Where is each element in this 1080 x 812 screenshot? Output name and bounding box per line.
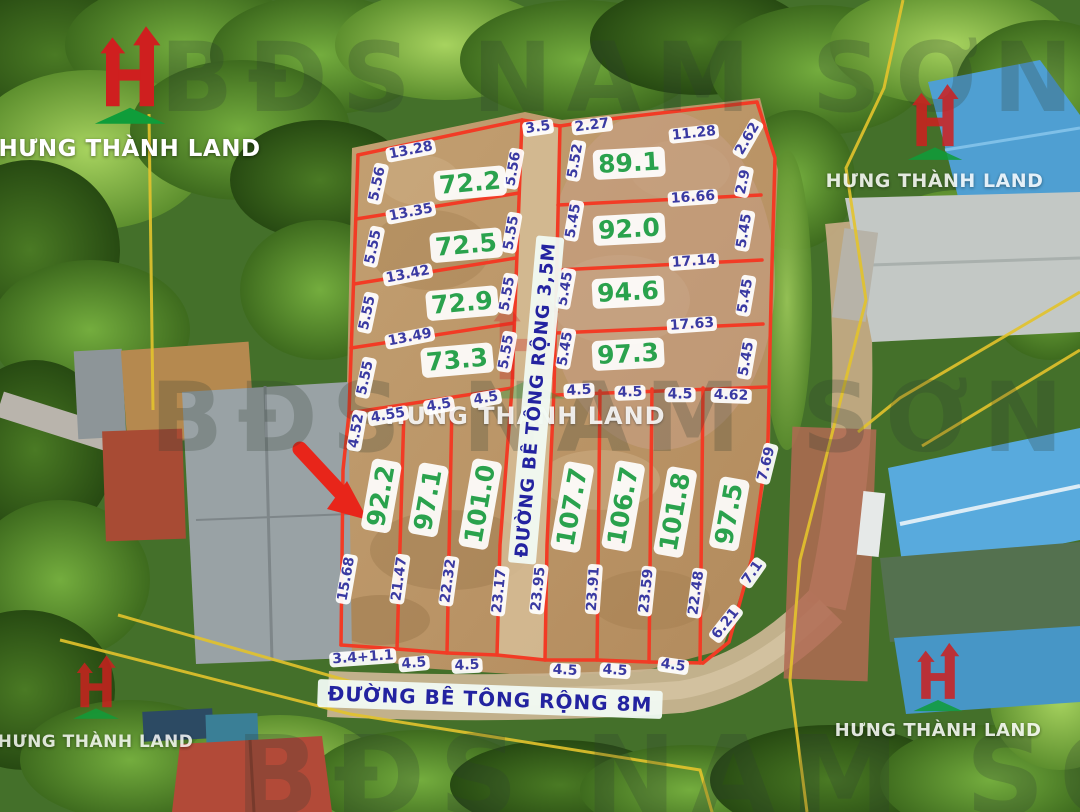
parcel-area-label: 106.7 [601, 460, 646, 553]
parcel-area-label: 92.2 [360, 458, 402, 534]
road-name-label: ĐƯỜNG BÊ TÔNG RỘNG 8M [317, 679, 663, 719]
labels-layer: 13.283.52.2711.282.625.565.5613.355.555.… [0, 0, 1080, 812]
dimension-label: 4.5 [469, 389, 502, 410]
dimension-label: 4.5 [451, 658, 483, 675]
dimension-label: 23.17 [490, 565, 511, 617]
dimension-label: 5.55 [497, 273, 519, 316]
parcel-area-label: 97.1 [407, 462, 449, 538]
dimension-label: 22.48 [686, 567, 708, 619]
dimension-label: 5.55 [496, 331, 518, 374]
dimension-label: 16.66 [667, 189, 718, 208]
dimension-label: 5.52 [565, 140, 587, 183]
parcel-area-label: 97.5 [708, 476, 750, 552]
dimension-label: 13.28 [385, 139, 437, 164]
dimension-label: 15.68 [335, 553, 359, 605]
dimension-label: 5.55 [501, 212, 523, 255]
dimension-label: 4.5 [422, 396, 455, 417]
parcel-area-label: 101.0 [458, 458, 503, 551]
dimension-label: 21.47 [389, 553, 411, 605]
parcel-area-label: 101.8 [653, 466, 698, 559]
dimension-label: 5.45 [563, 200, 585, 243]
dimension-label: 5.55 [356, 292, 379, 335]
parcel-area-label: 92.0 [592, 212, 665, 245]
dimension-label: 3.5 [522, 118, 555, 138]
dimension-label: 2.27 [571, 116, 613, 136]
dimension-label: 5.55 [354, 357, 377, 400]
dimension-label: 17.63 [666, 316, 717, 335]
dimension-label: 13.42 [382, 263, 434, 288]
parcel-area-label: 107.7 [550, 461, 595, 554]
parcel-area-label: 72.9 [425, 285, 499, 321]
dimension-label: 3.4+1.1 [329, 648, 397, 668]
dimension-label: 23.91 [585, 563, 604, 614]
dimension-label: 4.5 [398, 655, 430, 673]
parcel-area-label: 97.3 [591, 337, 664, 370]
dimension-label: 4.5 [563, 383, 595, 400]
dimension-label: 5.45 [735, 275, 757, 318]
dimension-label: 4.62 [710, 388, 751, 405]
parcel-area-label: 94.6 [591, 275, 664, 308]
dimension-label: 4.5 [599, 662, 631, 680]
dimension-label: 5.45 [734, 210, 756, 253]
dimension-label: 2.9 [733, 165, 754, 198]
dimension-label: 23.95 [529, 563, 550, 615]
dimension-label: 17.14 [668, 253, 719, 272]
dimension-label: 4.5 [657, 656, 690, 676]
dimension-label: 5.56 [366, 163, 389, 206]
dimension-label: 5.45 [555, 328, 577, 371]
parcel-area-label: 89.1 [592, 146, 665, 179]
dimension-label: 13.35 [385, 201, 437, 226]
parcel-area-label: 72.2 [433, 165, 507, 201]
parcel-area-label: 72.5 [429, 227, 503, 263]
parcel-area-label: 73.3 [420, 342, 494, 378]
dimension-label: 4.55 [367, 405, 410, 427]
dimension-label: 11.28 [668, 124, 720, 145]
dimension-label: 7.69 [755, 442, 780, 485]
dimension-label: 2.62 [731, 118, 765, 161]
dimension-label: 4.5 [665, 387, 696, 402]
dimension-label: 5.45 [736, 338, 758, 381]
dimension-label: 4.52 [346, 410, 368, 453]
dimension-label: 6.21 [707, 603, 744, 644]
dimension-label: 7.1 [738, 556, 768, 590]
dimension-label: 22.32 [438, 555, 460, 607]
dimension-label: 5.56 [503, 148, 525, 191]
dimension-label: 4.5 [614, 385, 645, 401]
dimension-label: 23.59 [637, 565, 658, 617]
dimension-label: 4.5 [549, 663, 581, 680]
dimension-label: 5.55 [362, 226, 385, 269]
aerial-plot-map: BĐS NAM SƠN 99 BĐS NAM SƠN BĐS NAM SƠN H… [0, 0, 1080, 812]
